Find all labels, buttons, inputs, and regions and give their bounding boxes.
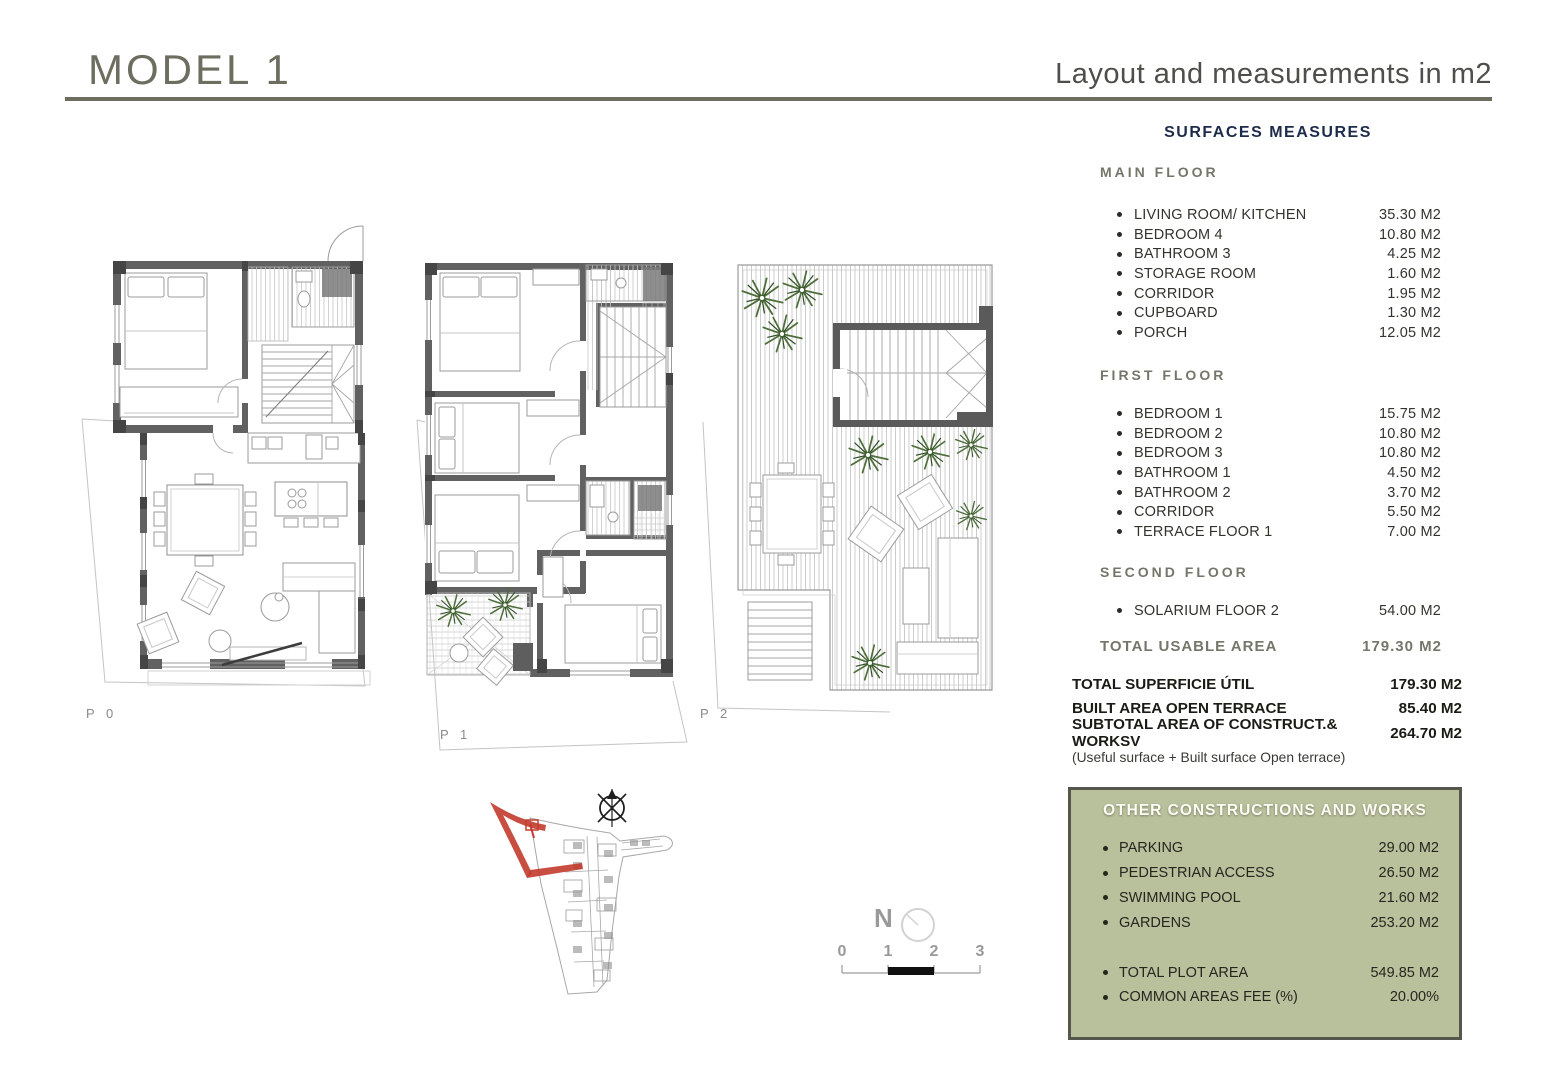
- scale-tick-3: 3: [976, 943, 985, 960]
- surface-row: LIVING ROOM/ KITCHEN35.30 M2: [1070, 205, 1441, 225]
- surface-value: 4.25 M2: [1387, 246, 1441, 262]
- surfaces-heading: SURFACES MEASURES: [1070, 124, 1466, 142]
- surface-row: CORRIDOR1.95 M2: [1070, 284, 1441, 304]
- surface-label: CORRIDOR: [1134, 286, 1215, 302]
- construction-label: SWIMMING POOL: [1119, 890, 1241, 906]
- other-constructions-totals: TOTAL PLOT AREA549.85 M2 COMMON AREAS FE…: [1071, 960, 1459, 1010]
- bullet-icon: [1117, 271, 1122, 276]
- surface-value: 1.95 M2: [1387, 286, 1441, 302]
- total-value: 264.70 M2: [1390, 725, 1462, 742]
- surface-value: 7.00 M2: [1387, 524, 1441, 540]
- page-title: MODEL 1: [88, 46, 292, 94]
- main-floor-items: LIVING ROOM/ KITCHEN35.30 M2 BEDROOM 410…: [1070, 205, 1441, 343]
- total-usable-label: TOTAL USABLE AREA: [1100, 638, 1277, 655]
- bullet-icon: [1117, 608, 1122, 613]
- construction-label: PEDESTRIAN ACCESS: [1119, 865, 1275, 881]
- total-label: BUILT AREA OPEN TERRACE: [1072, 700, 1287, 717]
- surface-value: 10.80 M2: [1379, 426, 1441, 442]
- surface-value: 3.70 M2: [1387, 485, 1441, 501]
- surface-row: PORCH12.05 M2: [1070, 323, 1441, 343]
- plan-label-p1: P 1: [440, 727, 471, 742]
- surface-row: BATHROOM 34.25 M2: [1070, 244, 1441, 264]
- surface-label: CORRIDOR: [1134, 504, 1215, 520]
- surface-value: 5.50 M2: [1387, 504, 1441, 520]
- surface-value: 54.00 M2: [1379, 603, 1441, 619]
- surface-value: 12.05 M2: [1379, 325, 1441, 341]
- surface-value: 1.30 M2: [1387, 305, 1441, 321]
- plan-label-p0: P 0: [86, 706, 117, 721]
- section-head-second-floor: SECOND FLOOR: [1100, 564, 1249, 580]
- header-divider: [65, 97, 1492, 101]
- construction-value: 29.00 M2: [1379, 840, 1439, 856]
- total-usable-area-row: TOTAL USABLE AREA 179.30 M2: [1070, 638, 1442, 655]
- bullet-icon: [1117, 431, 1122, 436]
- surface-label: BEDROOM 3: [1134, 445, 1223, 461]
- bullet-icon: [1117, 330, 1122, 335]
- surface-label: PORCH: [1134, 325, 1187, 341]
- bullet-icon: [1117, 311, 1122, 316]
- surface-row: BEDROOM 115.75 M2: [1070, 404, 1441, 424]
- bullet-icon: [1117, 470, 1122, 475]
- surface-row: TERRACE FLOOR 17.00 M2: [1070, 522, 1441, 542]
- total-value: 85.40 M2: [1399, 700, 1462, 717]
- other-constructions-box: OTHER CONSTRUCTIONS AND WORKS PARKING29.…: [1068, 787, 1462, 1040]
- first-floor-items: BEDROOM 115.75 M2 BEDROOM 210.80 M2 BEDR…: [1070, 404, 1441, 542]
- construction-label: GARDENS: [1119, 915, 1191, 931]
- total-usable-value: 179.30 M2: [1362, 638, 1442, 655]
- surface-row: BEDROOM 310.80 M2: [1070, 443, 1441, 463]
- bullet-icon: [1117, 212, 1122, 217]
- bullet-icon: [1103, 970, 1108, 975]
- surface-row: CORRIDOR5.50 M2: [1070, 502, 1441, 522]
- construction-label: COMMON AREAS FEE (%): [1119, 989, 1298, 1005]
- construction-value: 20.00%: [1390, 989, 1439, 1005]
- bullet-icon: [1103, 871, 1108, 876]
- section-head-main-floor: MAIN FLOOR: [1100, 164, 1219, 180]
- surface-label: BEDROOM 4: [1134, 227, 1223, 243]
- construction-value: 253.20 M2: [1370, 915, 1439, 931]
- bullet-icon: [1103, 846, 1108, 851]
- surface-row: BEDROOM 210.80 M2: [1070, 424, 1441, 444]
- svg-text:N: N: [874, 903, 893, 933]
- scale-tick-2: 2: [930, 943, 939, 960]
- bullet-icon: [1103, 895, 1108, 900]
- scale-tick-0: 0: [838, 943, 847, 960]
- surface-label: STORAGE ROOM: [1134, 266, 1256, 282]
- floor-plan-p1: [415, 245, 715, 765]
- construction-value: 21.60 M2: [1379, 890, 1439, 906]
- construction-row: GARDENS253.20 M2: [1085, 910, 1439, 935]
- surface-row: BEDROOM 410.80 M2: [1070, 225, 1441, 245]
- bullet-icon: [1117, 490, 1122, 495]
- surface-value: 35.30 M2: [1379, 207, 1441, 223]
- surface-label: BEDROOM 2: [1134, 426, 1223, 442]
- construction-label: TOTAL PLOT AREA: [1119, 965, 1248, 981]
- totals-block: TOTAL SUPERFICIE ÚTIL179.30 M2 BUILT ARE…: [1072, 672, 1462, 765]
- surface-row: CUPBOARD1.30 M2: [1070, 303, 1441, 323]
- totals-note: (Useful surface + Built surface Open ter…: [1072, 750, 1462, 765]
- construction-row: PARKING29.00 M2: [1085, 836, 1439, 861]
- surface-label: BEDROOM 1: [1134, 406, 1223, 422]
- scale-bar: N 0 1 2 3: [830, 885, 990, 995]
- section-head-first-floor: FIRST FLOOR: [1100, 367, 1226, 383]
- construction-label: PARKING: [1119, 840, 1183, 856]
- surface-value: 4.50 M2: [1387, 465, 1441, 481]
- other-constructions-items: PARKING29.00 M2 PEDESTRIAN ACCESS26.50 M…: [1071, 836, 1459, 935]
- construction-value: 26.50 M2: [1379, 865, 1439, 881]
- surface-value: 10.80 M2: [1379, 227, 1441, 243]
- plan-label-p2: P 2: [700, 706, 731, 721]
- compass-icon: [598, 789, 626, 827]
- bullet-icon: [1117, 529, 1122, 534]
- construction-total-row: COMMON AREAS FEE (%)20.00%: [1085, 985, 1439, 1010]
- surface-label: SOLARIUM FLOOR 2: [1134, 603, 1279, 619]
- second-floor-items: SOLARIUM FLOOR 254.00 M2: [1070, 601, 1441, 621]
- total-row: TOTAL SUPERFICIE ÚTIL179.30 M2: [1072, 672, 1462, 697]
- surface-row: STORAGE ROOM1.60 M2: [1070, 264, 1441, 284]
- bullet-icon: [1103, 995, 1108, 1000]
- surface-label: BATHROOM 3: [1134, 246, 1231, 262]
- site-plan: [470, 780, 670, 1020]
- total-label: SUBTOTAL AREA OF CONSTRUCT.& WORKSV: [1072, 716, 1390, 750]
- surface-value: 15.75 M2: [1379, 406, 1441, 422]
- total-value: 179.30 M2: [1390, 676, 1462, 693]
- floor-plan-p2: [700, 250, 1010, 735]
- bullet-icon: [1117, 510, 1122, 515]
- surface-row: BATHROOM 23.70 M2: [1070, 483, 1441, 503]
- bullet-icon: [1117, 411, 1122, 416]
- construction-total-row: TOTAL PLOT AREA549.85 M2: [1085, 960, 1439, 985]
- bullet-icon: [1103, 920, 1108, 925]
- surface-value: 10.80 M2: [1379, 445, 1441, 461]
- scale-tick-1: 1: [884, 943, 893, 960]
- construction-row: PEDESTRIAN ACCESS26.50 M2: [1085, 861, 1439, 886]
- surface-row: BATHROOM 14.50 M2: [1070, 463, 1441, 483]
- surface-label: CUPBOARD: [1134, 305, 1218, 321]
- surface-label: LIVING ROOM/ KITCHEN: [1134, 207, 1306, 223]
- surface-value: 1.60 M2: [1387, 266, 1441, 282]
- bullet-icon: [1117, 252, 1122, 257]
- bullet-icon: [1117, 291, 1122, 296]
- construction-value: 549.85 M2: [1370, 965, 1439, 981]
- north-indicator-icon: N: [874, 903, 934, 941]
- floor-plan-p0: [70, 245, 470, 735]
- surface-label: BATHROOM 2: [1134, 485, 1231, 501]
- total-label: TOTAL SUPERFICIE ÚTIL: [1072, 676, 1254, 693]
- bullet-icon: [1117, 232, 1122, 237]
- surface-label: BATHROOM 1: [1134, 465, 1231, 481]
- construction-row: SWIMMING POOL21.60 M2: [1085, 886, 1439, 911]
- total-row: SUBTOTAL AREA OF CONSTRUCT.& WORKSV264.7…: [1072, 721, 1462, 746]
- surface-label: TERRACE FLOOR 1: [1134, 524, 1272, 540]
- other-constructions-heading: OTHER CONSTRUCTIONS AND WORKS: [1071, 802, 1459, 820]
- page-subtitle: Layout and measurements in m2: [800, 58, 1492, 91]
- bullet-icon: [1117, 451, 1122, 456]
- surface-row: SOLARIUM FLOOR 254.00 M2: [1070, 601, 1441, 621]
